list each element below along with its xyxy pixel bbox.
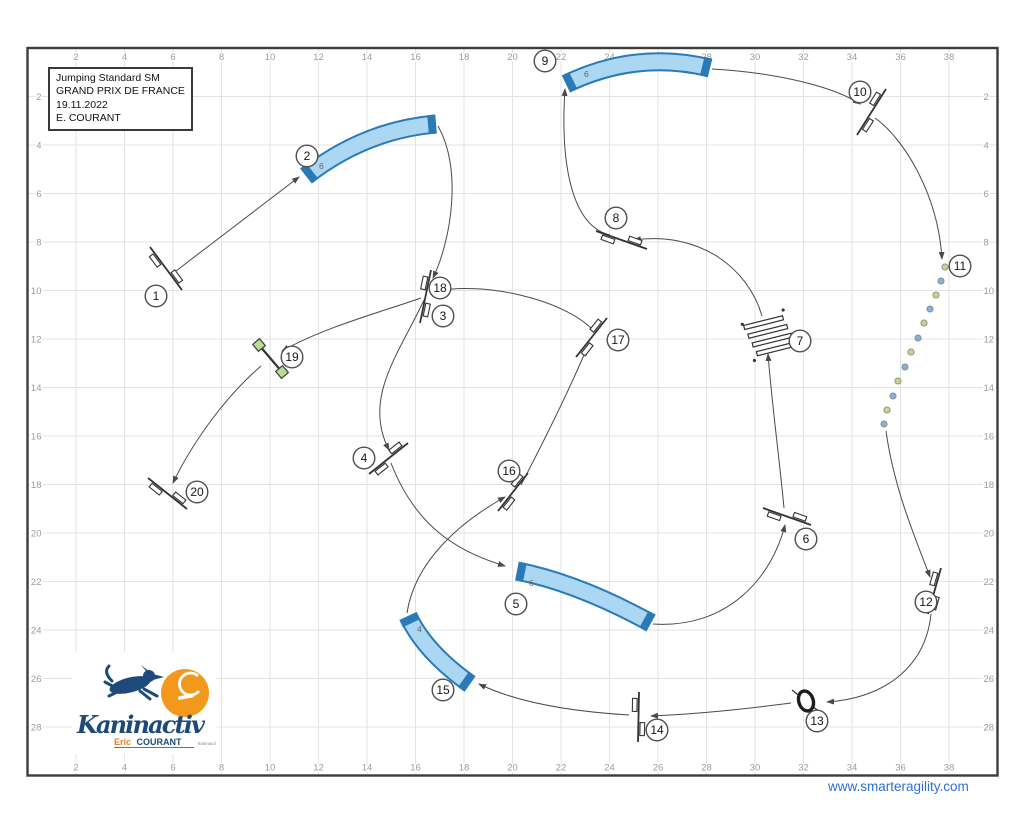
x-tick-top: 20 — [507, 52, 518, 63]
obstacle-number-3: 3 — [432, 305, 454, 327]
obstacle-number-1: 1 — [145, 285, 167, 307]
path-leg-1-2 — [176, 177, 299, 271]
obstacle-number-6: 6 — [795, 528, 817, 550]
x-tick-bottom: 2 — [73, 763, 78, 774]
x-tick-top: 22 — [556, 52, 567, 63]
path-leg-4-5 — [391, 463, 505, 566]
y-tick-right: 18 — [984, 480, 995, 491]
svg-text:17: 17 — [611, 333, 625, 347]
logo-dog-icon — [105, 665, 164, 699]
weave-pole — [895, 378, 901, 384]
path-leg-13-14 — [651, 703, 791, 716]
svg-text:11: 11 — [954, 259, 967, 273]
course-class: Jumping Standard SM — [56, 72, 185, 85]
x-tick-bottom: 6 — [170, 763, 175, 774]
path-leg-7-8 — [634, 239, 762, 316]
obstacle-9-tunnel: 6 — [566, 62, 710, 84]
x-tick-bottom: 10 — [265, 763, 276, 774]
y-tick-right: 10 — [984, 286, 995, 297]
weave-pole — [942, 264, 948, 270]
obstacle-number-19: 19 — [281, 346, 303, 368]
x-tick-top: 38 — [944, 52, 955, 63]
svg-text:9: 9 — [542, 54, 549, 68]
x-tick-bottom: 14 — [362, 763, 373, 774]
weave-pole — [915, 335, 921, 341]
y-tick-left: 6 — [36, 189, 41, 200]
path-leg-9-10 — [712, 69, 860, 104]
path-leg-8-9 — [564, 89, 610, 235]
tunnel-length-label: 4 — [417, 624, 422, 634]
x-tick-top: 2 — [73, 52, 78, 63]
y-tick-left: 4 — [36, 141, 41, 152]
y-tick-left: 10 — [31, 286, 42, 297]
obstacles: 16218346567869101112131441516171920 — [145, 50, 971, 742]
svg-text:12: 12 — [919, 595, 933, 609]
path-leg-2-3 — [433, 126, 452, 278]
y-tick-right: 26 — [984, 674, 995, 685]
obstacle-11-weave — [881, 264, 948, 427]
smarteragility-link[interactable]: www.smarteragility.com — [828, 779, 969, 794]
svg-text:1: 1 — [153, 289, 160, 303]
x-tick-bottom: 4 — [122, 763, 127, 774]
weave-pole — [908, 349, 914, 355]
obstacle-number-11: 11 — [949, 255, 971, 277]
tunnel-length-label: 6 — [584, 69, 589, 79]
x-tick-bottom: 28 — [701, 763, 712, 774]
y-tick-right: 28 — [984, 723, 995, 734]
obstacle-number-8: 8 — [605, 207, 627, 229]
weave-pole — [881, 421, 887, 427]
tunnel-length-label: 6 — [319, 161, 324, 171]
obstacle-number-13: 13 — [806, 710, 828, 732]
weave-pole — [902, 364, 908, 370]
obstacle-14-jump — [632, 692, 644, 742]
svg-text:10: 10 — [853, 85, 867, 99]
course-event: GRAND PRIX DE FRANCE — [56, 85, 185, 98]
path-leg-16-17 — [521, 348, 587, 485]
y-tick-right: 14 — [984, 383, 995, 394]
y-tick-left: 24 — [31, 626, 42, 637]
svg-text:7: 7 — [797, 334, 804, 348]
y-tick-left: 14 — [31, 383, 42, 394]
tunnel-length-label: 6 — [529, 578, 534, 588]
y-tick-left: 20 — [31, 529, 42, 540]
course-judge: E. COURANT — [56, 112, 185, 125]
path-leg-10-11 — [875, 118, 942, 259]
weave-pole — [921, 320, 927, 326]
y-tick-right: 16 — [984, 432, 995, 443]
x-tick-top: 34 — [847, 52, 858, 63]
y-tick-left: 8 — [36, 238, 41, 249]
svg-text:3: 3 — [440, 309, 447, 323]
y-tick-left: 2 — [36, 92, 41, 103]
obstacle-number-15: 15 — [432, 679, 454, 701]
y-tick-left: 18 — [31, 480, 42, 491]
svg-text:16: 16 — [502, 464, 516, 478]
logo-subtitle: Eric COURANT — [114, 737, 182, 747]
x-tick-bottom: 18 — [459, 763, 470, 774]
x-tick-bottom: 36 — [895, 763, 906, 774]
logo-wordmark: Kaninactiv — [76, 710, 206, 739]
weave-pole — [933, 292, 939, 298]
x-tick-top: 4 — [122, 52, 127, 63]
y-tick-right: 2 — [984, 92, 989, 103]
x-tick-bottom: 12 — [313, 763, 324, 774]
y-tick-left: 22 — [31, 577, 42, 588]
logo-subtitle-first: Eric — [114, 737, 131, 747]
obstacle-number-16: 16 — [498, 460, 520, 482]
x-tick-top: 8 — [219, 52, 224, 63]
path-leg-17-18 — [438, 289, 593, 330]
svg-text:5: 5 — [513, 597, 520, 611]
svg-text:2: 2 — [304, 149, 311, 163]
obstacle-number-10: 10 — [849, 81, 871, 103]
path-leg-19-20 — [173, 366, 261, 483]
path-leg-18-19 — [282, 298, 421, 351]
weave-pole — [890, 393, 896, 399]
obstacle-number-20: 20 — [186, 481, 208, 503]
x-tick-bottom: 30 — [750, 763, 761, 774]
obstacle-8-jump — [596, 231, 647, 249]
svg-text:4: 4 — [361, 451, 368, 465]
x-tick-top: 18 — [459, 52, 470, 63]
course-date: 19.11.2022 — [56, 99, 185, 112]
path-leg-14-15 — [479, 684, 629, 715]
x-tick-bottom: 38 — [944, 763, 955, 774]
x-tick-bottom: 26 — [653, 763, 664, 774]
weave-pole — [927, 306, 933, 312]
x-tick-bottom: 8 — [219, 763, 224, 774]
x-tick-bottom: 34 — [847, 763, 858, 774]
obstacle-number-12: 12 — [915, 591, 937, 613]
obstacle-number-17: 17 — [607, 329, 629, 351]
logo-subtitle-last: COURANT — [137, 737, 182, 747]
obstacle-17-jump — [576, 318, 607, 357]
weave-pole — [938, 278, 944, 284]
obstacle-number-14: 14 — [646, 719, 668, 741]
course-path — [173, 69, 942, 716]
path-leg-3-4 — [380, 300, 424, 450]
svg-text:13: 13 — [810, 714, 824, 728]
y-tick-right: 22 — [984, 577, 995, 588]
x-tick-top: 36 — [895, 52, 906, 63]
x-tick-bottom: 16 — [410, 763, 421, 774]
obstacle-number-18: 18 — [429, 277, 451, 299]
obstacle-20-jump — [148, 478, 187, 509]
kaninactiv-logo-graphic: Kaninactiv Eric COURANT kaninactiv — [72, 652, 216, 754]
svg-text:6: 6 — [803, 532, 810, 546]
path-leg-15-16 — [407, 497, 505, 613]
obstacle-number-9: 9 — [534, 50, 556, 72]
x-tick-top: 10 — [265, 52, 276, 63]
path-leg-11-12 — [886, 431, 930, 577]
path-leg-5-6 — [653, 525, 785, 624]
y-tick-left: 28 — [31, 723, 42, 734]
x-tick-top: 12 — [313, 52, 324, 63]
obstacle-number-5: 5 — [505, 593, 527, 615]
obstacle-5-tunnel: 6 — [517, 571, 651, 623]
y-tick-right: 24 — [984, 626, 995, 637]
course-title-block: Jumping Standard SM GRAND PRIX DE FRANCE… — [48, 67, 193, 131]
y-tick-right: 6 — [984, 189, 989, 200]
kaninactiv-logo: Kaninactiv Eric COURANT kaninactiv — [72, 652, 216, 754]
x-tick-top: 30 — [750, 52, 761, 63]
svg-text:20: 20 — [190, 485, 204, 499]
obstacle-13-tire — [792, 689, 821, 713]
x-tick-bottom: 32 — [798, 763, 809, 774]
obstacle-15-tunnel: 4 — [408, 616, 470, 684]
x-tick-top: 32 — [798, 52, 809, 63]
x-tick-bottom: 20 — [507, 763, 518, 774]
y-tick-left: 26 — [31, 674, 42, 685]
agility-course-page: 2244668810101212141416161818202022222424… — [0, 0, 1024, 815]
weave-pole — [884, 407, 890, 413]
obstacle-1-jump — [149, 247, 182, 290]
y-tick-left: 16 — [31, 432, 42, 443]
svg-text:14: 14 — [650, 723, 664, 737]
svg-text:18: 18 — [433, 281, 447, 295]
obstacle-number-2: 2 — [296, 145, 318, 167]
svg-text:8: 8 — [613, 211, 620, 225]
x-tick-bottom: 22 — [556, 763, 567, 774]
logo-tagline: kaninactiv — [198, 741, 216, 746]
path-leg-12-13 — [827, 614, 931, 702]
svg-text:19: 19 — [285, 350, 299, 364]
x-tick-bottom: 24 — [604, 763, 615, 774]
y-tick-right: 20 — [984, 529, 995, 540]
y-tick-right: 8 — [984, 238, 989, 249]
obstacle-2-tunnel: 6 — [306, 124, 436, 176]
x-tick-top: 14 — [362, 52, 373, 63]
y-tick-right: 12 — [984, 335, 995, 346]
x-tick-top: 6 — [170, 52, 175, 63]
obstacle-3-18-jump — [420, 270, 431, 323]
obstacle-number-7: 7 — [789, 330, 811, 352]
y-tick-left: 12 — [31, 335, 42, 346]
y-tick-right: 4 — [984, 141, 989, 152]
obstacle-number-4: 4 — [353, 447, 375, 469]
x-tick-top: 16 — [410, 52, 421, 63]
svg-text:15: 15 — [436, 683, 450, 697]
